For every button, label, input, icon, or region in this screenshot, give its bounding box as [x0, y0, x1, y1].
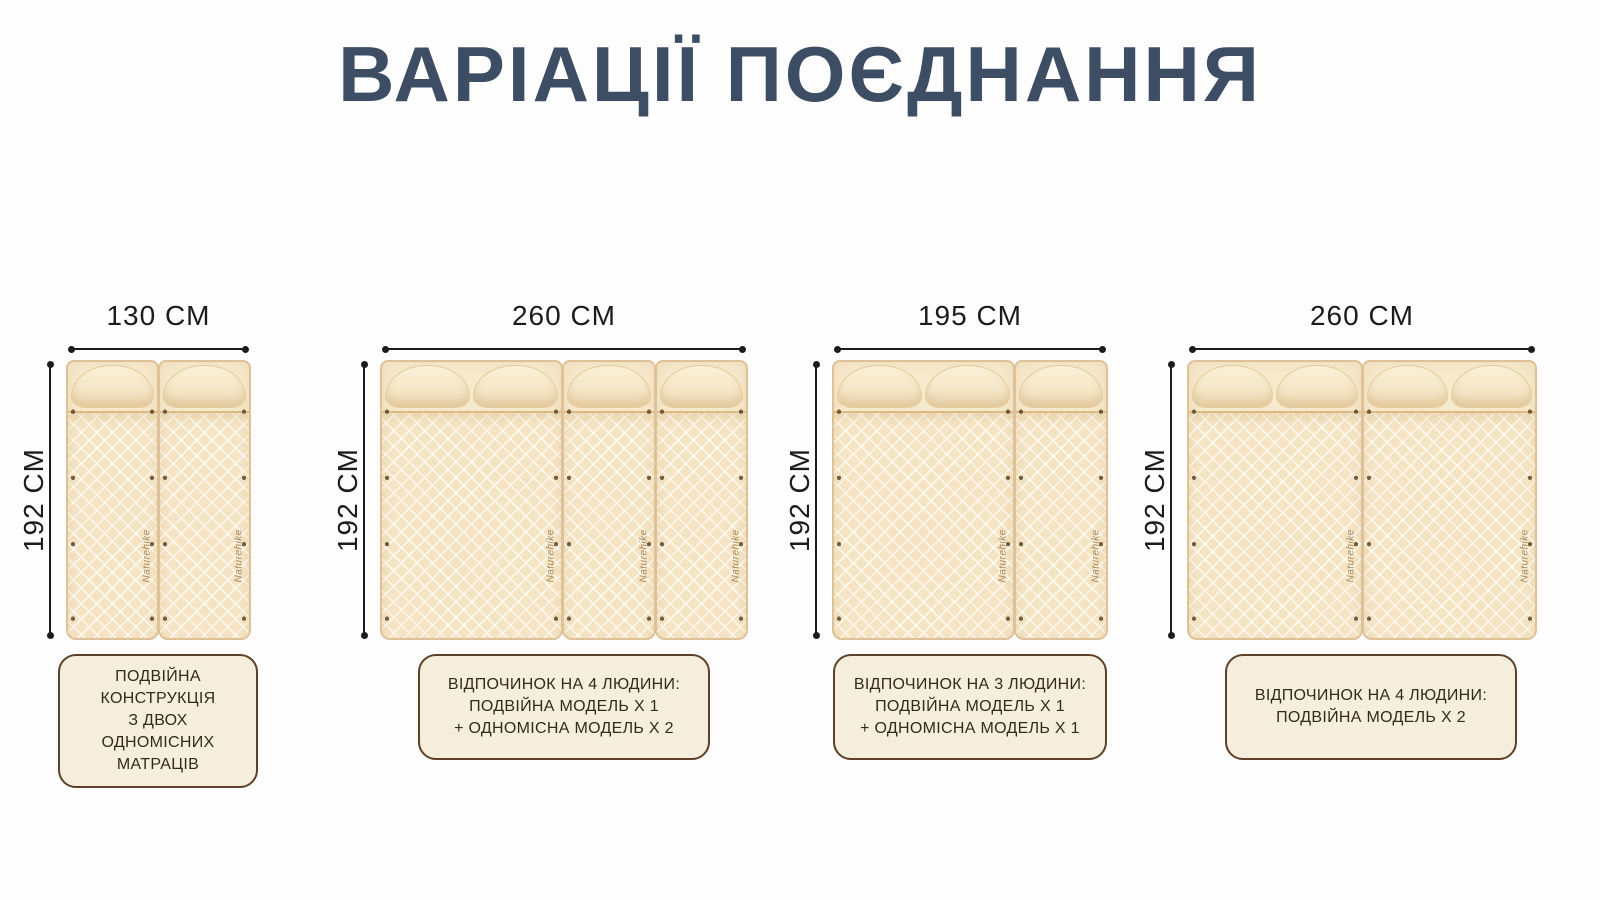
vertical-dimension-line	[1170, 362, 1172, 638]
quilt-surface	[834, 411, 1013, 638]
pillow	[1451, 365, 1532, 408]
height-dimension-label: 192 CM	[18, 445, 50, 555]
mattress-illustration: Naturehike Naturehike	[66, 360, 251, 640]
quilt-surface	[564, 411, 654, 638]
brand-label: Naturehike	[731, 567, 742, 583]
quilt-surface	[657, 411, 747, 638]
brand-label: Naturehike	[1091, 567, 1102, 583]
pillow	[473, 365, 558, 408]
vertical-dimension-line	[815, 362, 817, 638]
brand-label: Naturehike	[546, 567, 557, 583]
horizontal-dimension-line	[1190, 348, 1534, 350]
page-title: ВАРІАЦІЇ ПОЄДНАННЯ	[0, 34, 1600, 116]
quilt-surface	[1189, 411, 1361, 638]
pillow	[71, 365, 154, 408]
mattress-single: Naturehike	[655, 360, 749, 640]
height-dimension-label: 192 CM	[784, 445, 816, 555]
brand-label: Naturehike	[1520, 567, 1531, 583]
pillow	[1192, 365, 1273, 408]
pillow	[163, 365, 246, 408]
panel-two-singles: 130 CM 192 CM Naturehike Naturehike ПОДВ…	[20, 300, 258, 788]
mattress-single: Naturehike	[158, 360, 251, 640]
quilt-surface	[1016, 411, 1106, 638]
caption-text: ВІДПОЧИНОК НА 4 ЛЮДИНИ: ПОДВІЙНА МОДЕЛЬ …	[1255, 685, 1487, 729]
pillow	[925, 365, 1010, 408]
vertical-dimension-line	[49, 362, 51, 638]
caption-box: ПОДВІЙНА КОНСТРУКЦІЯ З ДВОХ ОДНОМІСНИХ М…	[58, 654, 258, 788]
mattress-illustration: Naturehike Naturehike	[1187, 360, 1537, 640]
width-dimension-label: 260 CM	[1187, 300, 1537, 332]
mattress-double: Naturehike	[380, 360, 563, 640]
pillow	[567, 365, 651, 408]
caption-box: ВІДПОЧИНОК НА 3 ЛЮДИНИ: ПОДВІЙНА МОДЕЛЬ …	[833, 654, 1107, 760]
height-dimension-label: 192 CM	[1139, 445, 1171, 555]
width-dimension: 130 CM	[66, 300, 251, 360]
mattress-single: Naturehike	[1014, 360, 1108, 640]
panel-double-plus-two-singles: 260 CM 192 CM Naturehike Naturehike	[334, 300, 748, 760]
caption-text: ВІДПОЧИНОК НА 4 ЛЮДИНИ: ПОДВІЙНА МОДЕЛЬ …	[448, 674, 680, 740]
quilt-surface	[68, 411, 157, 638]
mattress-single: Naturehike	[562, 360, 656, 640]
panel-double-plus-single: 195 CM 192 CM Naturehike Naturehike	[786, 300, 1108, 760]
horizontal-dimension-line	[835, 348, 1105, 350]
width-dimension: 260 CM	[1187, 300, 1537, 360]
height-dimension: 192 CM	[1141, 360, 1187, 640]
panel-two-doubles: 260 CM 192 CM Naturehike N	[1141, 300, 1537, 760]
mattress-double: Naturehike	[1362, 360, 1538, 640]
mattress-double: Naturehike	[832, 360, 1015, 640]
mattress-illustration: Naturehike Naturehike Naturehike	[380, 360, 748, 640]
caption-box: ВІДПОЧИНОК НА 4 ЛЮДИНИ: ПОДВІЙНА МОДЕЛЬ …	[418, 654, 710, 760]
width-dimension-label: 260 CM	[380, 300, 748, 332]
mattress-single: Naturehike	[66, 360, 159, 640]
height-dimension: 192 CM	[334, 360, 380, 640]
horizontal-dimension-line	[383, 348, 745, 350]
brand-label: Naturehike	[998, 567, 1009, 583]
brand-label: Naturehike	[234, 567, 245, 583]
brand-label: Naturehike	[1345, 567, 1356, 583]
brand-label: Naturehike	[142, 567, 153, 583]
caption-text: ВІДПОЧИНОК НА 3 ЛЮДИНИ: ПОДВІЙНА МОДЕЛЬ …	[854, 674, 1086, 740]
pillow	[837, 365, 922, 408]
pillow	[1019, 365, 1103, 408]
height-dimension-label: 192 CM	[332, 445, 364, 555]
mattress-illustration: Naturehike Naturehike	[832, 360, 1108, 640]
horizontal-dimension-line	[69, 348, 248, 350]
height-dimension: 192 CM	[20, 360, 66, 640]
quilt-surface	[382, 411, 561, 638]
pillow	[660, 365, 744, 408]
quilt-surface	[160, 411, 249, 638]
mattress-double: Naturehike	[1187, 360, 1363, 640]
width-dimension: 260 CM	[380, 300, 748, 360]
pillow	[1276, 365, 1357, 408]
vertical-dimension-line	[363, 362, 365, 638]
pillow	[1367, 365, 1448, 408]
height-dimension: 192 CM	[786, 360, 832, 640]
width-dimension-label: 195 CM	[832, 300, 1108, 332]
brand-label: Naturehike	[638, 567, 649, 583]
width-dimension: 195 CM	[832, 300, 1108, 360]
quilt-surface	[1364, 411, 1536, 638]
caption-text: ПОДВІЙНА КОНСТРУКЦІЯ З ДВОХ ОДНОМІСНИХ М…	[72, 666, 244, 776]
caption-box: ВІДПОЧИНОК НА 4 ЛЮДИНИ: ПОДВІЙНА МОДЕЛЬ …	[1225, 654, 1517, 760]
width-dimension-label: 130 CM	[66, 300, 251, 332]
pillow	[385, 365, 470, 408]
